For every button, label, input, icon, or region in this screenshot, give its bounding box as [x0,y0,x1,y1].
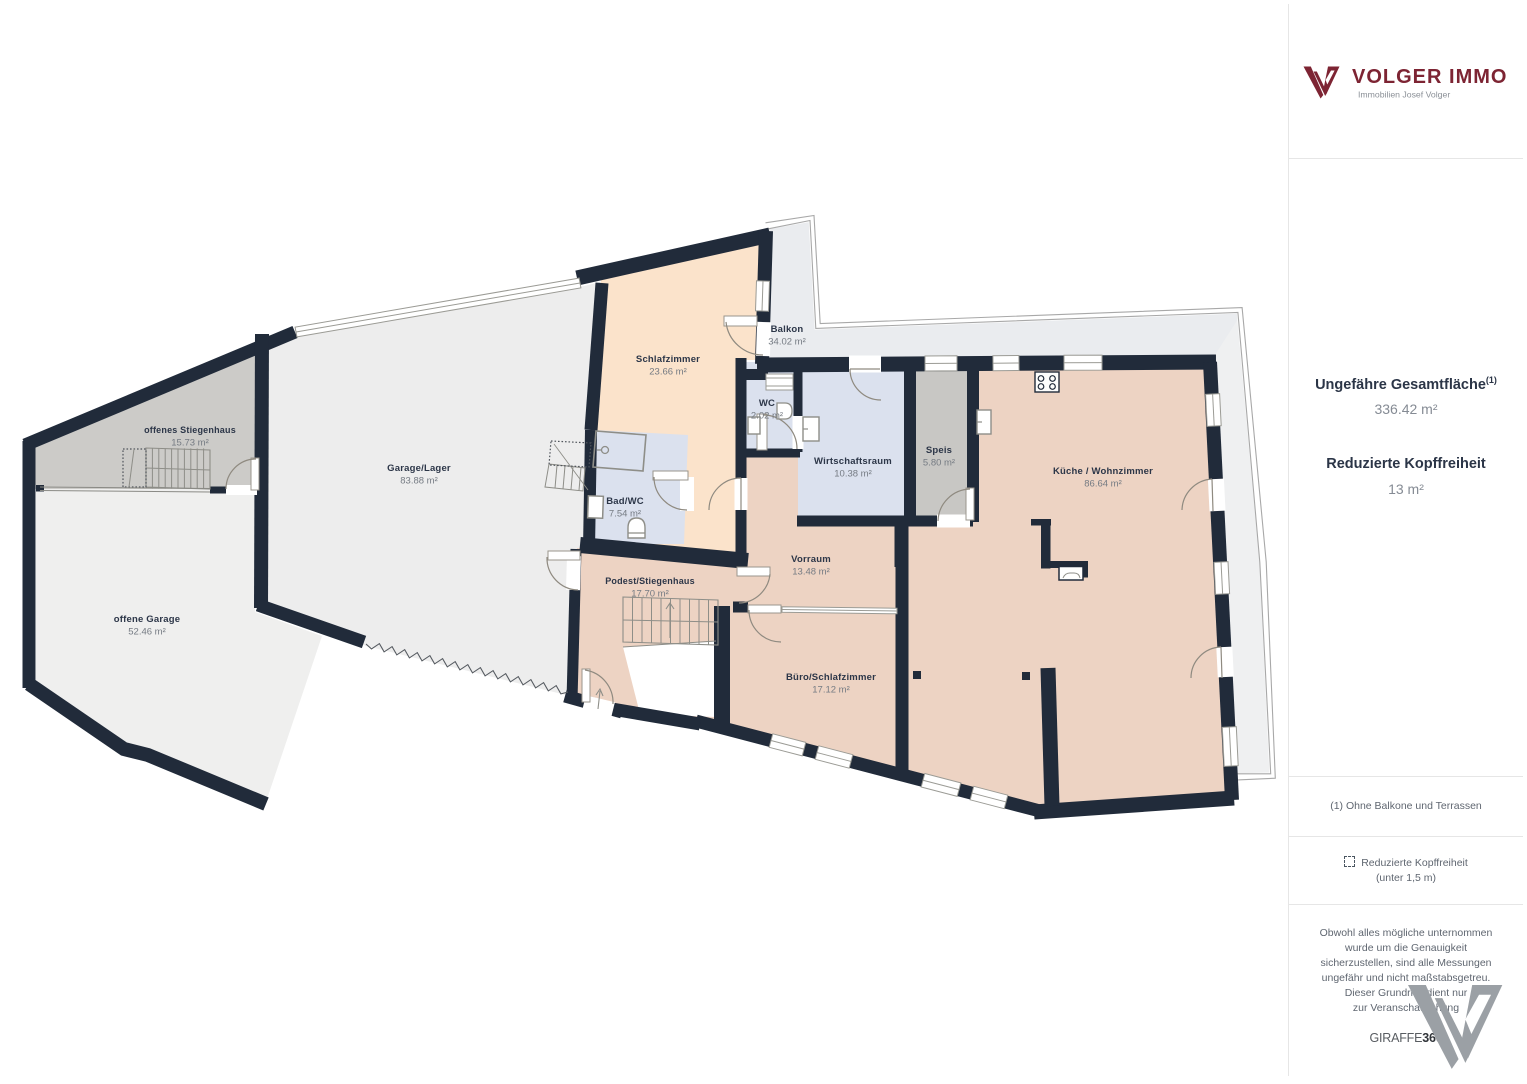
svg-text:Immobilien Josef Volger: Immobilien Josef Volger [1358,90,1450,100]
svg-text:17.12 m²: 17.12 m² [812,685,850,696]
svg-text:17.70 m²: 17.70 m² [631,589,669,600]
svg-text:13.48 m²: 13.48 m² [792,567,830,578]
svg-text:Podest/Stiegenhaus: Podest/Stiegenhaus [605,576,695,586]
svg-text:7.54 m²: 7.54 m² [609,509,641,520]
svg-text:offenes Stiegenhaus: offenes Stiegenhaus [144,425,236,435]
svg-text:Balkon: Balkon [771,324,804,335]
svg-text:Schlafzimmer: Schlafzimmer [636,354,700,365]
svg-text:Speis: Speis [926,445,952,456]
svg-text:5.80 m²: 5.80 m² [923,458,955,469]
svg-text:34.02 m²: 34.02 m² [768,337,806,348]
svg-text:15.73 m²: 15.73 m² [171,438,209,449]
svg-text:83.88 m²: 83.88 m² [400,476,438,487]
svg-text:WC: WC [759,398,775,409]
svg-text:Vorraum: Vorraum [791,554,831,565]
svg-text:Büro/Schlafzimmer: Büro/Schlafzimmer [786,672,876,683]
svg-text:2.02 m²: 2.02 m² [751,411,783,422]
svg-text:86.64 m²: 86.64 m² [1084,479,1122,490]
svg-text:Wirtschaftsraum: Wirtschaftsraum [814,456,892,467]
svg-text:offene Garage: offene Garage [114,614,180,625]
svg-text:Küche / Wohnzimmer: Küche / Wohnzimmer [1053,466,1153,477]
svg-text:23.66 m²: 23.66 m² [649,367,687,378]
svg-text:VOLGER IMMO: VOLGER IMMO [1352,66,1507,88]
svg-text:Garage/Lager: Garage/Lager [387,463,451,474]
svg-text:Bad/WC: Bad/WC [606,496,644,507]
svg-text:10.38 m²: 10.38 m² [834,469,872,480]
svg-text:52.46 m²: 52.46 m² [128,627,166,638]
